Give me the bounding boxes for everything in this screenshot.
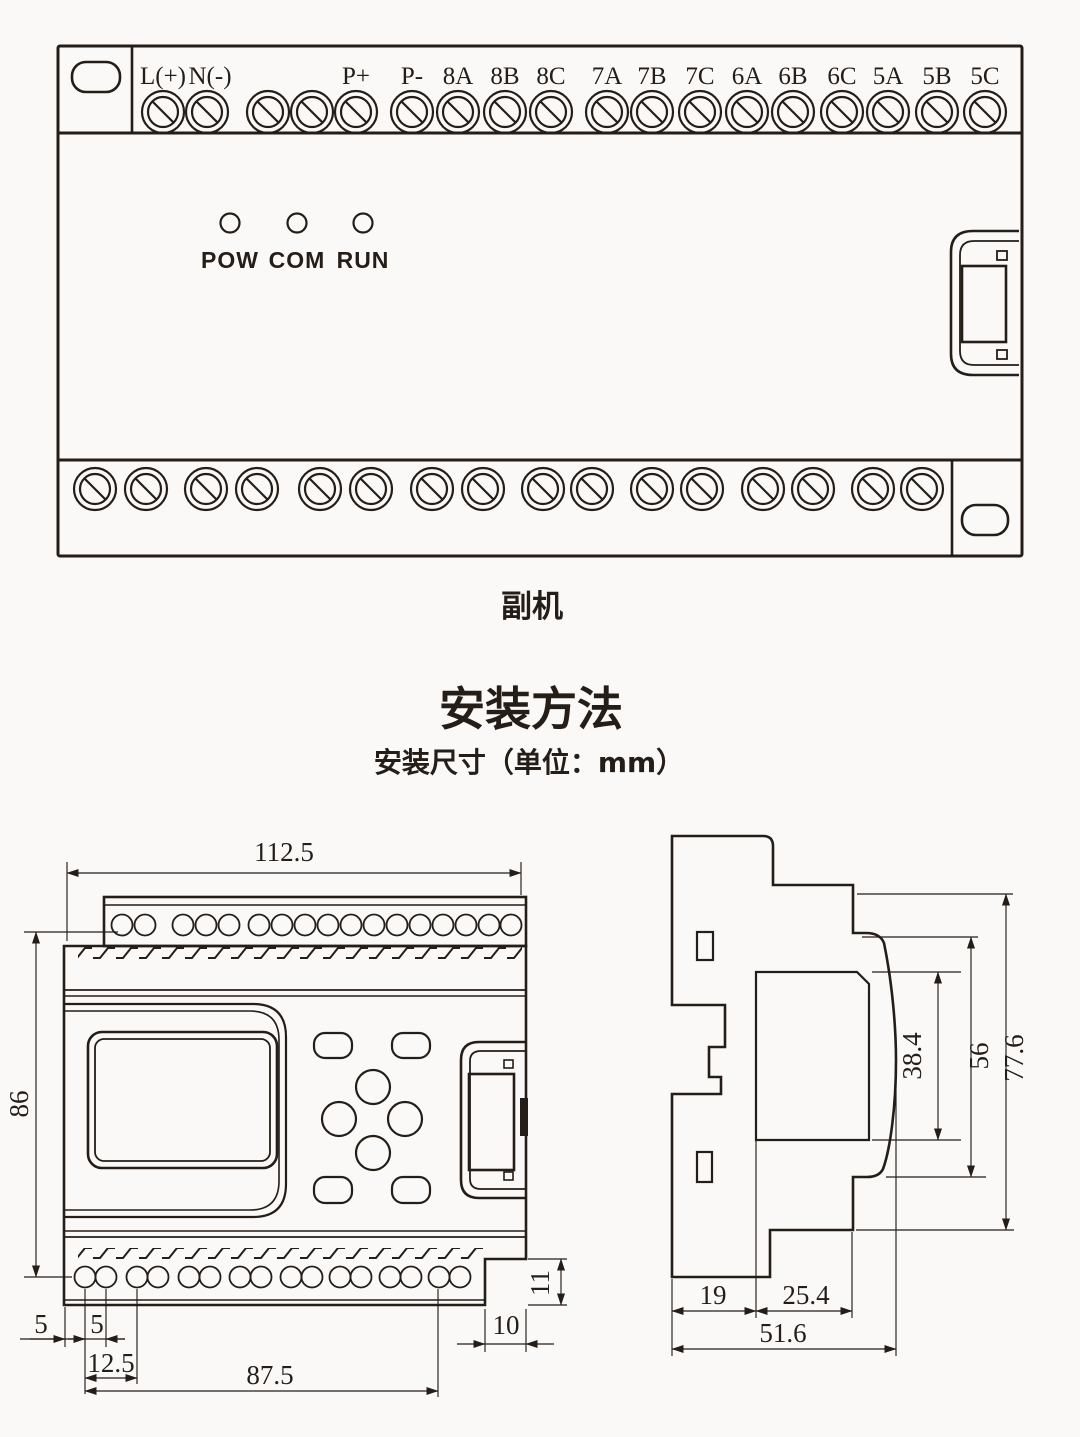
dim-edge-offset: 5 (34, 1309, 48, 1339)
screw-terminal-icon (185, 468, 227, 510)
terminal-label: 7C (685, 63, 714, 90)
terminal-label: 7B (637, 63, 666, 90)
top-screw-terminals (142, 91, 1006, 133)
run-led-label: RUN (337, 247, 390, 273)
terminal-label: 6C (827, 63, 856, 90)
screw-terminal-icon (186, 91, 228, 133)
status-leds: POW COM RUN (201, 214, 389, 274)
dim-width: 112.5 (254, 837, 314, 867)
screw-terminal-icon (867, 91, 909, 133)
screw-terminal-icon (437, 91, 479, 133)
key-button (314, 1177, 352, 1203)
key-button (392, 1177, 430, 1203)
bottom-screw-terminals (74, 468, 943, 510)
dim-hole-pitch: 5 (90, 1309, 104, 1339)
screw-terminal-icon (484, 91, 526, 133)
dim-panel-height: 38.4 (897, 1032, 927, 1080)
device-top-view: L(+) N(-) P+ P- 8A 8B 8C 7A 7B 7C 6A 6B … (58, 46, 1022, 556)
screw-terminal-icon (571, 468, 613, 510)
lcd-window-inner (95, 1039, 270, 1161)
pow-led-label: POW (201, 247, 259, 273)
key-up (356, 1070, 390, 1104)
side-front-panel (756, 972, 869, 1140)
screw-terminal-icon (236, 468, 278, 510)
terminal-label: L(+) (140, 63, 186, 90)
section-title: 安装方法 (439, 682, 623, 736)
manual-page: L(+) N(-) P+ P- 8A 8B 8C 7A 7B 7C 6A 6B … (0, 0, 1080, 1437)
dim-total-depth: 51.6 (759, 1318, 806, 1348)
dim-height: 86 (4, 1091, 34, 1118)
screw-terminal-icon (852, 468, 894, 510)
dim-87-5: 87.5 (246, 1360, 293, 1390)
terminal-label: N(-) (188, 63, 231, 90)
vent-band-bottom (78, 1248, 483, 1262)
screw-terminal-icon (964, 91, 1006, 133)
screw-terminal-icon (726, 91, 768, 133)
terminal-label: 6A (732, 63, 763, 90)
dim-front-depth: 25.4 (782, 1280, 830, 1310)
key-button (392, 1033, 430, 1058)
vent-band-top (78, 947, 522, 961)
technical-drawing: L(+) N(-) P+ P- 8A 8B 8C 7A 7B 7C 6A 6B … (0, 0, 1080, 1437)
screw-terminal-icon (350, 468, 392, 510)
screw-terminal-icon (299, 468, 341, 510)
com-led-label: COM (269, 247, 326, 273)
screw-terminal-icon (462, 468, 504, 510)
key-button (314, 1033, 352, 1058)
screw-terminal-icon (335, 91, 377, 133)
terminal-label: 7A (592, 63, 623, 90)
section-subtitle: 安装尺寸（单位：mm） (374, 746, 684, 779)
terminal-label: 5A (873, 63, 904, 90)
side-view-dimensions: 38.4 56 77.6 19 25.4 51.6 (672, 894, 1029, 1356)
screw-terminal-icon (530, 91, 572, 133)
screw-terminal-icon (391, 91, 433, 133)
screw-terminal-icon (125, 468, 167, 510)
screw-terminal-icon (631, 91, 673, 133)
dim-total-height: 77.6 (999, 1034, 1029, 1081)
side-slot-upper (697, 932, 713, 960)
lcd-window-outer (88, 1032, 277, 1168)
screw-terminal-icon (586, 91, 628, 133)
com-led-icon (288, 214, 307, 233)
screw-terminal-icon (411, 468, 453, 510)
screw-terminal-icon (291, 91, 333, 133)
terminal-label: 8A (443, 63, 474, 90)
screw-terminal-icon (522, 468, 564, 510)
screw-terminal-icon (247, 91, 289, 133)
screw-terminal-icon (901, 468, 943, 510)
terminal-label: 8B (490, 63, 519, 90)
screw-terminal-icon (742, 468, 784, 510)
terminal-label: 6B (778, 63, 807, 90)
screw-terminal-icon (681, 468, 723, 510)
mounting-slot-top-left (72, 62, 120, 92)
side-view: 38.4 56 77.6 19 25.4 51.6 (672, 836, 1029, 1356)
screw-terminal-icon (631, 468, 673, 510)
dim-notch-height: 11 (525, 1270, 555, 1296)
key-right (388, 1102, 422, 1136)
dim-mid-height: 56 (964, 1043, 994, 1070)
key-down (356, 1136, 390, 1170)
screw-terminal-icon (792, 468, 834, 510)
dim-notch-width: 10 (493, 1310, 520, 1340)
dim-12-5: 12.5 (87, 1348, 134, 1378)
front-top-holes (112, 915, 522, 936)
screw-terminal-icon (74, 468, 116, 510)
screw-terminal-icon (142, 91, 184, 133)
front-view: 112.5 86 5 5 12.5 87.5 11 (4, 837, 567, 1397)
dim-din-offset: 19 (700, 1280, 727, 1310)
screw-terminal-icon (916, 91, 958, 133)
terminal-labels: L(+) N(-) P+ P- 8A 8B 8C 7A 7B 7C 6A 6B … (140, 63, 1000, 90)
screw-terminal-icon (772, 91, 814, 133)
key-left (322, 1102, 356, 1136)
bezel-groove-outer (64, 1004, 286, 1217)
side-slot-lower (697, 1152, 712, 1182)
side-profile-outline (672, 836, 896, 1277)
keypad (314, 1033, 430, 1203)
run-led-icon (354, 214, 373, 233)
connector-tab (520, 1098, 528, 1136)
terminal-label: 5C (970, 63, 999, 90)
terminal-label: 8C (536, 63, 565, 90)
screw-terminal-icon (821, 91, 863, 133)
terminal-label: P- (401, 63, 423, 90)
comm-connector (951, 231, 1019, 375)
device-caption: 副机 (501, 589, 563, 625)
bezel-groove-inner (64, 1011, 279, 1210)
screw-terminal-icon (679, 91, 721, 133)
front-connector (461, 1042, 528, 1198)
mounting-slot-bottom-right (962, 505, 1008, 535)
terminal-label: 5B (922, 63, 951, 90)
terminal-label: P+ (342, 63, 370, 90)
pow-led-icon (221, 214, 240, 233)
front-bottom-holes (75, 1267, 471, 1288)
